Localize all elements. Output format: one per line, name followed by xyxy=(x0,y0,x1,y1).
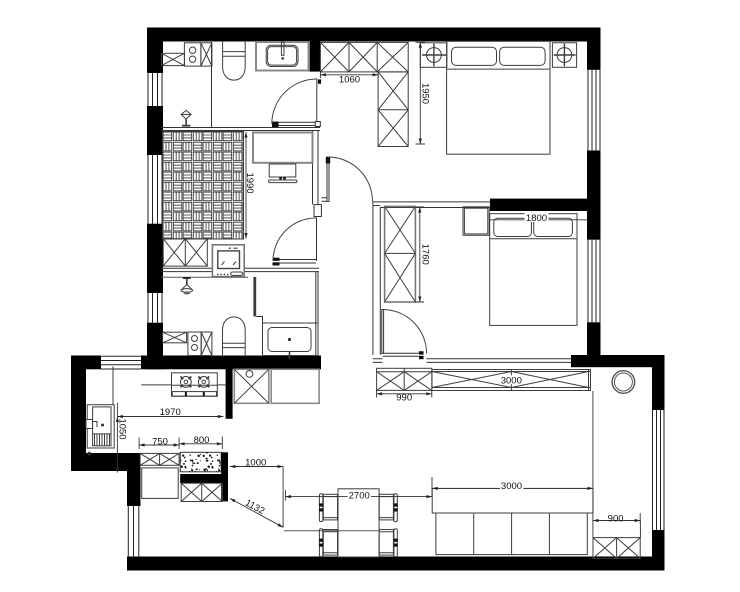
svg-text:1760: 1760 xyxy=(420,244,431,265)
svg-text:1050: 1050 xyxy=(116,418,127,439)
svg-text:1950: 1950 xyxy=(419,83,430,104)
svg-text:900: 900 xyxy=(608,513,624,524)
svg-text:990: 990 xyxy=(396,393,412,404)
svg-text:3000: 3000 xyxy=(501,481,522,492)
svg-text:1800: 1800 xyxy=(526,213,547,224)
svg-text:2700: 2700 xyxy=(349,491,370,502)
svg-text:800: 800 xyxy=(194,435,210,446)
svg-text:1970: 1970 xyxy=(160,407,181,418)
svg-text:1060: 1060 xyxy=(339,74,360,85)
svg-text:1000: 1000 xyxy=(245,458,266,469)
svg-text:1990: 1990 xyxy=(244,172,255,193)
svg-text:3000: 3000 xyxy=(501,376,522,387)
svg-text:750: 750 xyxy=(152,436,168,447)
